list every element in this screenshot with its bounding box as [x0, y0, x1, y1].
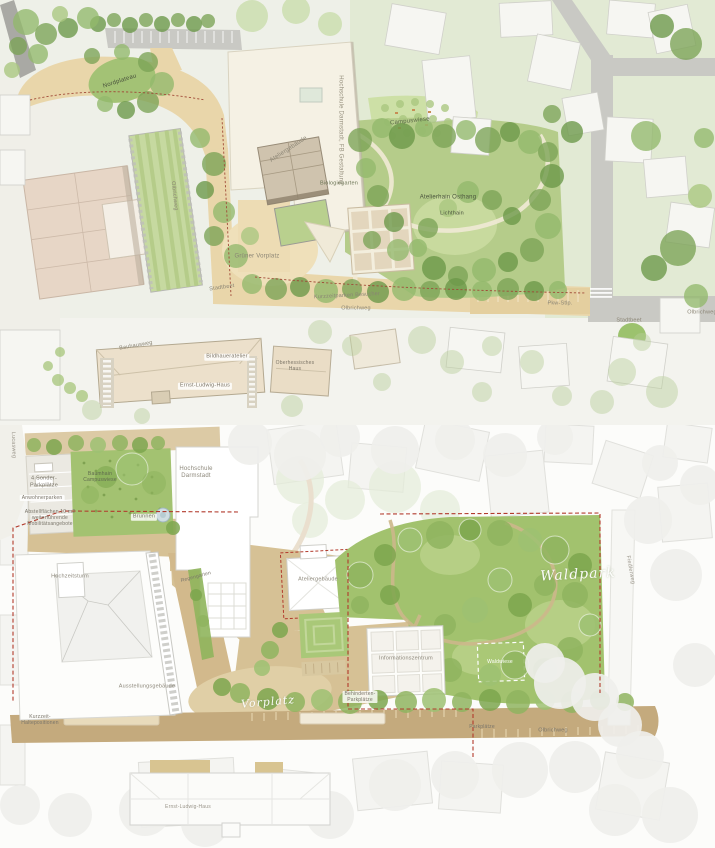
label-olbrichweg-bottom: Olbrichweg [538, 728, 568, 735]
label-line: Parkplätze [30, 482, 58, 489]
label-ausstellungsgebaeude: Ausstellungsgebäude [119, 684, 175, 691]
label-olbrichweg-mitte: Olbrichweg [341, 306, 371, 313]
brunnen-fountain [156, 508, 170, 522]
site-plan-poster: Nordplateau Hochschule Darmstadt, FB Ges… [0, 0, 715, 848]
masterplan-bottom: Lucasweg 4 Sonder- Parkplätze Anwohnerpa… [0, 425, 715, 848]
label-ernst-ludwig-haus: Ernst-Ludwig-Haus [178, 383, 232, 390]
label-biologiegarten: Biologiegarten [320, 181, 358, 188]
label-lucasweg: Lucasweg [9, 432, 17, 459]
label-ateliergebaeude-bottom: Ateliergebäude [298, 577, 338, 584]
label-bildhaueratelier: Bildhaueratelier [204, 354, 249, 361]
label-line: Haus [276, 366, 315, 372]
label-line: Hochschule [179, 466, 212, 473]
label-pkw-stellplaetze: Pkw-Stlp. [547, 301, 572, 308]
label-abstellflaechen: Abstellflächen 10 m2 weiterführende Mobi… [25, 509, 75, 527]
top-plan-drawing [0, 0, 715, 425]
crosswalk [590, 288, 612, 298]
label-informationszentrum: Informationszentrum [379, 656, 433, 663]
terraced-garden [299, 612, 350, 676]
label-line: 4 Sonder- [30, 475, 58, 482]
label-hochschule: Hochschule Darmstadt [179, 466, 212, 480]
masterplan-top: Nordplateau Hochschule Darmstadt, FB Ges… [0, 0, 715, 425]
label-line: Mobilitätsangebote [25, 521, 75, 527]
halt-bay [300, 713, 385, 724]
skylight [300, 88, 322, 102]
bottom-plan-drawing [0, 425, 715, 848]
label-parkplaetze: Parkplätze [469, 724, 495, 730]
label-hochschule-gebaeude: Hochschule Darmstadt, FB Gestaltung [336, 75, 343, 184]
label-lichthain: Lichthain [440, 211, 464, 218]
label-ernst-ludwig-haus-bottom: Ernst-Ludwig-Haus [165, 804, 211, 810]
label-line: Parkplätze [344, 697, 375, 703]
label-gruener-vorplatz: Grüner Vorplatz [234, 253, 279, 260]
label-baumhain: Baumhain Campuswiese [83, 471, 117, 483]
label-waldwiese: Waldwiese [487, 659, 513, 665]
label-stadtbeet-ost: Stadtbeet [616, 318, 641, 325]
label-sonder-parkplaetze: 4 Sonder- Parkplätze [30, 475, 58, 488]
label-behinderten-parkplaetze: Behinderten- Parkplätze [342, 691, 377, 703]
hochzeitsturm-complex [15, 551, 182, 720]
label-oberhessisches-haus: Oberhessisches Haus [276, 360, 315, 372]
label-olbrichweg-ost: Olbrichweg [687, 310, 715, 317]
label-line: Haltepositionen [21, 720, 58, 726]
label-anwohnerparken: Anwohnerparken [20, 495, 65, 501]
label-line: Darmstadt [179, 473, 212, 480]
grid-pavilion [348, 204, 414, 274]
label-line: Campuswiese [83, 477, 117, 483]
label-brunnen: Brunnen [131, 514, 157, 521]
label-kurzzeit-halte: Kurzzeit- Haltepositionen [21, 714, 58, 726]
atrium-grid [208, 583, 246, 629]
label-atelierhain-osthang: Atelierhain Osthang [420, 194, 477, 201]
label-hochzeitsturm: Hochzeitsturm [51, 574, 89, 581]
